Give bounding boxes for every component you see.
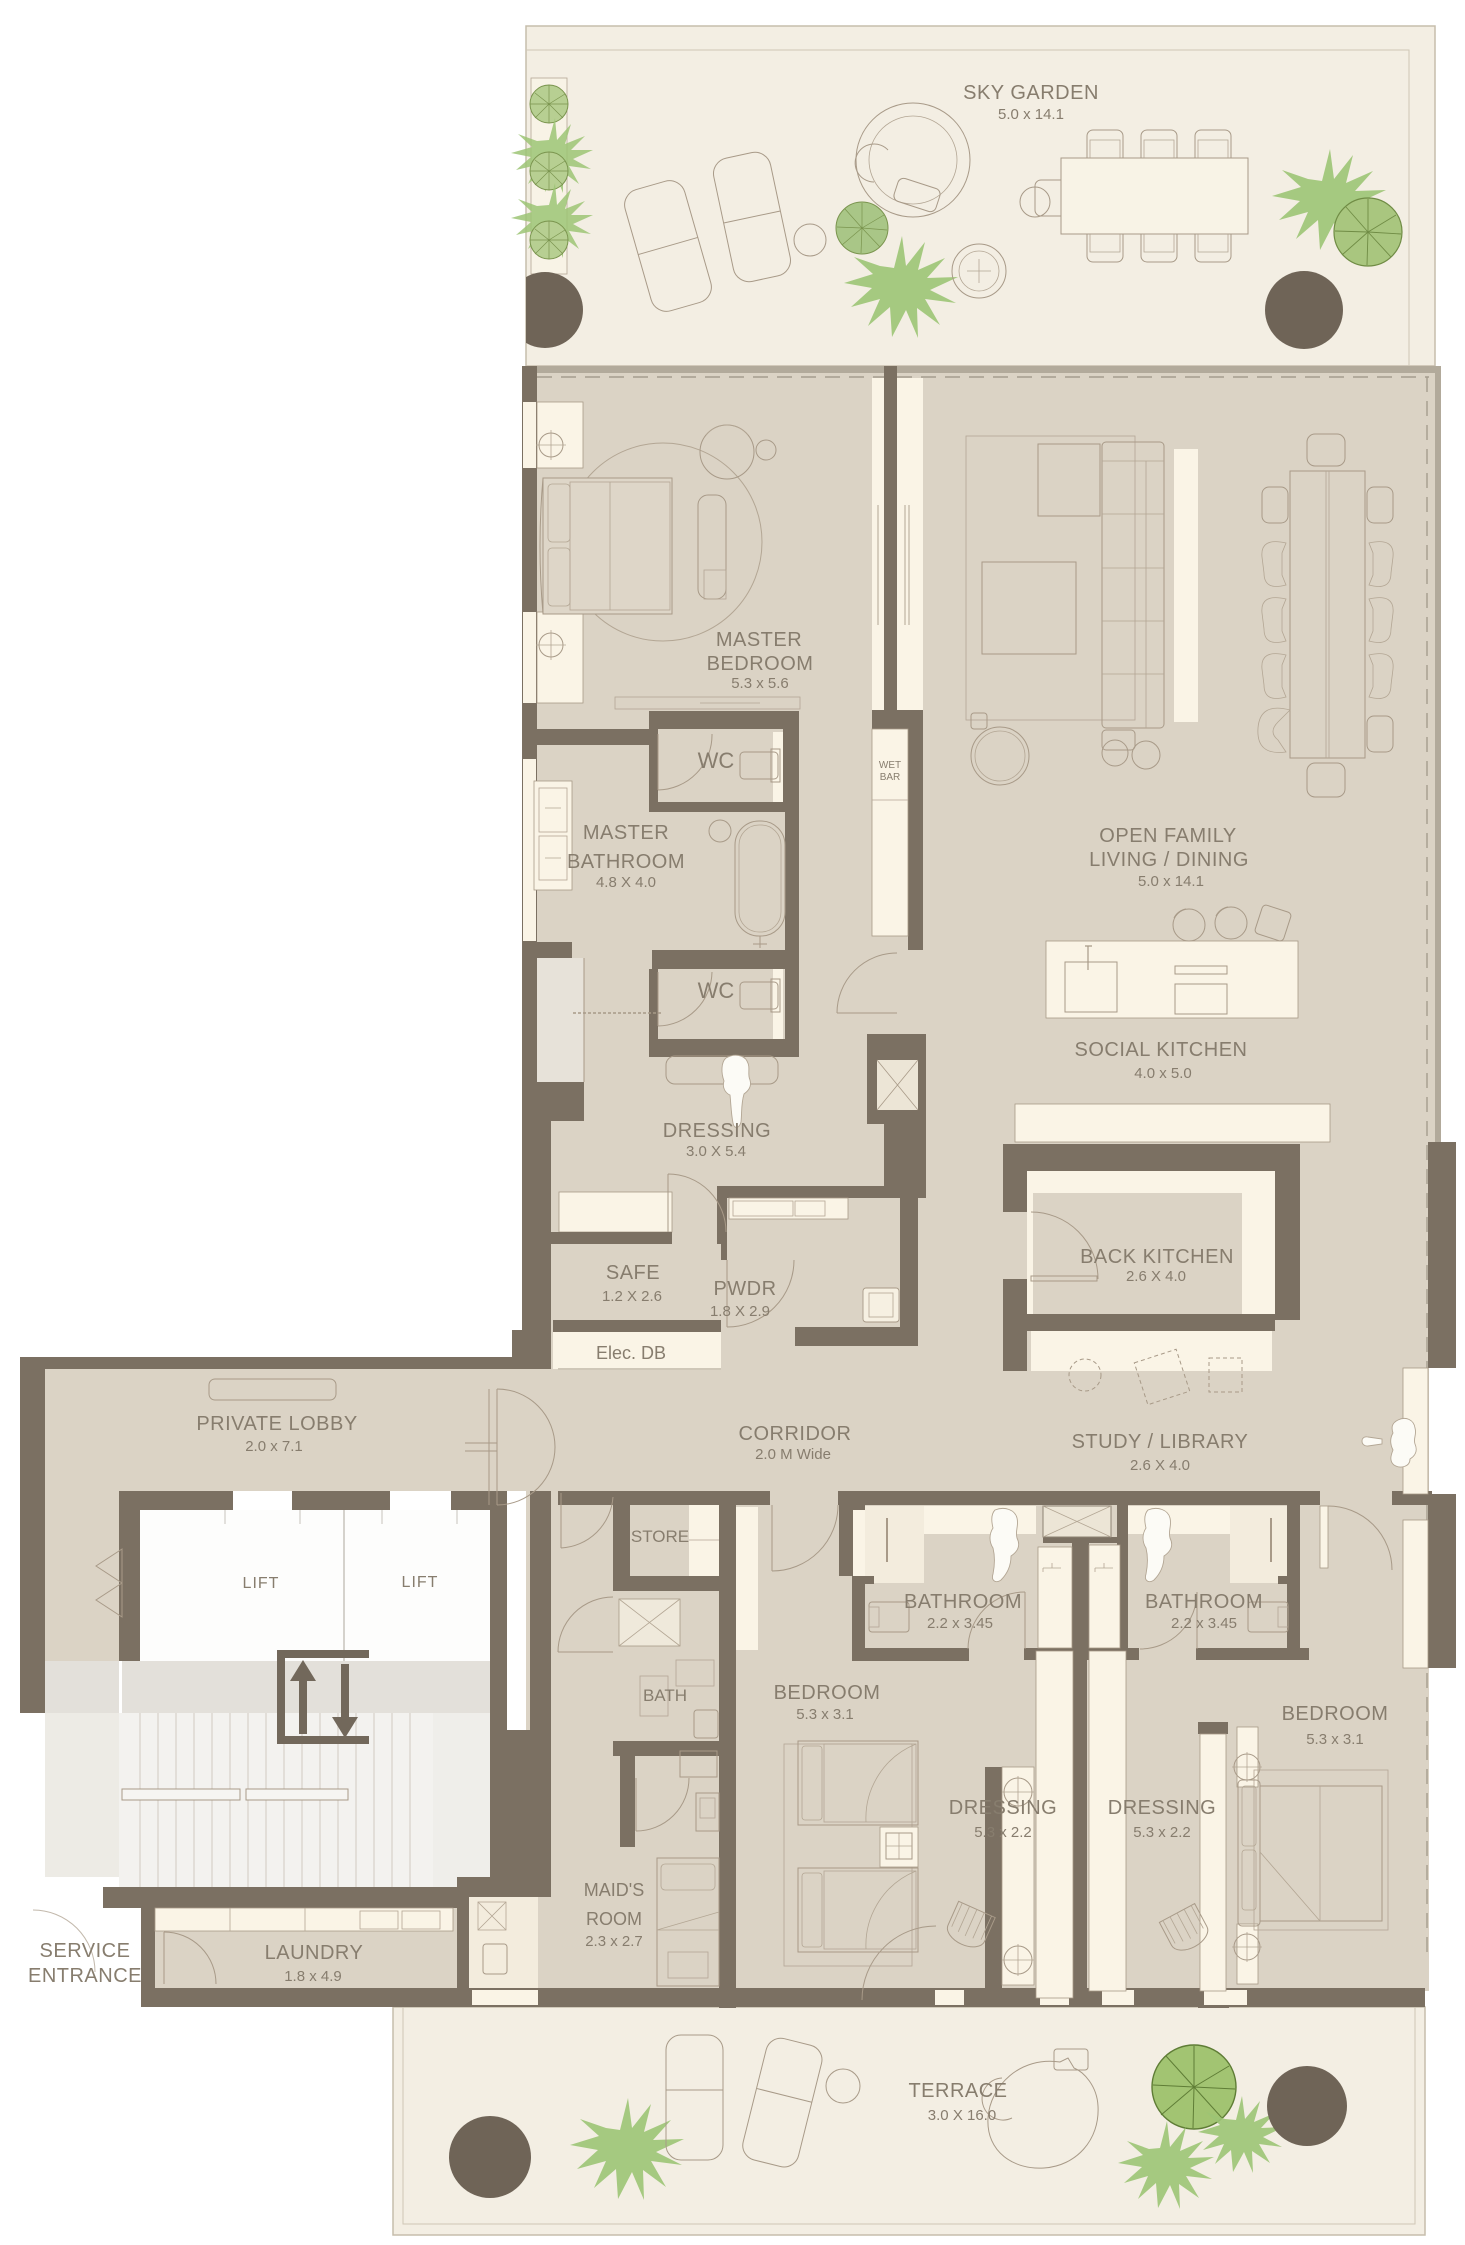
- svg-text:5.3 x 3.1: 5.3 x 3.1: [796, 1706, 854, 1723]
- svg-text:2.0 M Wide: 2.0 M Wide: [755, 1446, 831, 1463]
- svg-text:LIFT: LIFT: [243, 1575, 280, 1592]
- svg-text:SOCIAL KITCHEN: SOCIAL KITCHEN: [1075, 1039, 1248, 1061]
- svg-text:WC: WC: [698, 748, 735, 773]
- svg-text:BATH: BATH: [643, 1686, 687, 1705]
- svg-text:BATHROOM: BATHROOM: [904, 1591, 1022, 1613]
- svg-text:BEDROOM: BEDROOM: [774, 1682, 881, 1704]
- svg-text:3.0 X 5.4: 3.0 X 5.4: [686, 1143, 746, 1160]
- svg-text:TERRACE: TERRACE: [908, 2080, 1007, 2102]
- svg-text:2.3 x 2.7: 2.3 x 2.7: [585, 1933, 643, 1950]
- svg-text:1.2 X 2.6: 1.2 X 2.6: [602, 1288, 662, 1305]
- svg-text:Elec. DB: Elec. DB: [596, 1343, 666, 1363]
- svg-text:4.8 X 4.0: 4.8 X 4.0: [596, 874, 656, 891]
- svg-text:1.8 X 2.9: 1.8 X 2.9: [710, 1303, 770, 1320]
- svg-text:2.0 x 7.1: 2.0 x 7.1: [245, 1438, 303, 1455]
- svg-text:5.3 x 5.6: 5.3 x 5.6: [731, 675, 789, 692]
- svg-text:4.0 x 5.0: 4.0 x 5.0: [1134, 1065, 1192, 1082]
- svg-text:1.8 x 4.9: 1.8 x 4.9: [284, 1968, 342, 1985]
- svg-text:2.6 X 4.0: 2.6 X 4.0: [1130, 1457, 1190, 1474]
- svg-text:DRESSING: DRESSING: [663, 1120, 771, 1142]
- svg-text:BEDROOM: BEDROOM: [707, 653, 814, 675]
- svg-text:5.3 x 3.1: 5.3 x 3.1: [1306, 1731, 1364, 1748]
- svg-text:ENTRANCE: ENTRANCE: [28, 1965, 142, 1987]
- svg-text:LIFT: LIFT: [402, 1574, 439, 1591]
- svg-text:WET: WET: [879, 760, 901, 771]
- svg-text:ROOM: ROOM: [586, 1909, 642, 1929]
- svg-text:MASTER: MASTER: [583, 822, 669, 844]
- svg-text:OPEN FAMILY: OPEN FAMILY: [1099, 825, 1236, 847]
- svg-text:PRIVATE LOBBY: PRIVATE LOBBY: [196, 1413, 357, 1435]
- svg-text:STORE: STORE: [631, 1527, 689, 1546]
- svg-text:BACK KITCHEN: BACK KITCHEN: [1080, 1246, 1234, 1268]
- svg-text:DRESSING: DRESSING: [949, 1797, 1057, 1819]
- svg-text:LIVING / DINING: LIVING / DINING: [1089, 849, 1249, 871]
- svg-text:PWDR: PWDR: [713, 1278, 776, 1300]
- svg-text:WC: WC: [698, 978, 735, 1003]
- svg-text:MASTER: MASTER: [716, 629, 802, 651]
- svg-text:5.3 x 2.2: 5.3 x 2.2: [974, 1824, 1032, 1841]
- svg-text:2.6 X 4.0: 2.6 X 4.0: [1126, 1268, 1186, 1285]
- svg-text:MAID'S: MAID'S: [584, 1880, 644, 1900]
- svg-text:SKY GARDEN: SKY GARDEN: [963, 82, 1099, 104]
- svg-text:5.0 x 14.1: 5.0 x 14.1: [998, 106, 1064, 123]
- svg-text:5.0 x 14.1: 5.0 x 14.1: [1138, 873, 1204, 890]
- svg-text:LAUNDRY: LAUNDRY: [265, 1942, 364, 1964]
- svg-text:BATHROOM: BATHROOM: [567, 851, 685, 873]
- svg-text:CORRIDOR: CORRIDOR: [739, 1423, 852, 1445]
- svg-text:5.3 x 2.2: 5.3 x 2.2: [1133, 1824, 1191, 1841]
- svg-text:SAFE: SAFE: [606, 1262, 660, 1284]
- svg-text:STUDY / LIBRARY: STUDY / LIBRARY: [1072, 1431, 1249, 1453]
- svg-text:2.2 x 3.45: 2.2 x 3.45: [1171, 1615, 1237, 1632]
- svg-text:SERVICE: SERVICE: [40, 1940, 131, 1962]
- svg-text:BEDROOM: BEDROOM: [1282, 1703, 1389, 1725]
- svg-text:DRESSING: DRESSING: [1108, 1797, 1216, 1819]
- svg-text:BATHROOM: BATHROOM: [1145, 1591, 1263, 1613]
- svg-text:3.0 X 16.0: 3.0 X 16.0: [928, 2107, 996, 2124]
- svg-text:2.2 x 3.45: 2.2 x 3.45: [927, 1615, 993, 1632]
- svg-text:BAR: BAR: [880, 772, 901, 783]
